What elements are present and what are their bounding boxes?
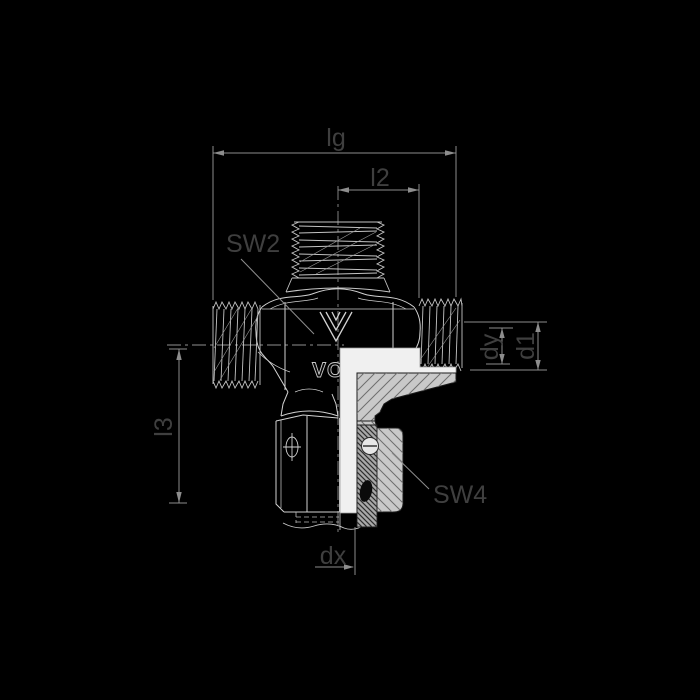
part-marking-text: VO — [312, 359, 344, 382]
label-dx: dx — [320, 542, 347, 570]
label-d1: d1 — [512, 332, 540, 360]
label-l2: l2 — [370, 164, 389, 192]
swivel-ball — [362, 438, 379, 455]
fitting-technical-drawing: VO — [0, 0, 700, 700]
label-dy: dy — [476, 333, 504, 360]
label-sw4: SW4 — [433, 481, 487, 509]
label-sw2: SW2 — [226, 230, 280, 258]
label-l3: l3 — [150, 417, 178, 436]
drawing-canvas: VO — [0, 0, 700, 700]
label-lg: lg — [326, 124, 345, 152]
